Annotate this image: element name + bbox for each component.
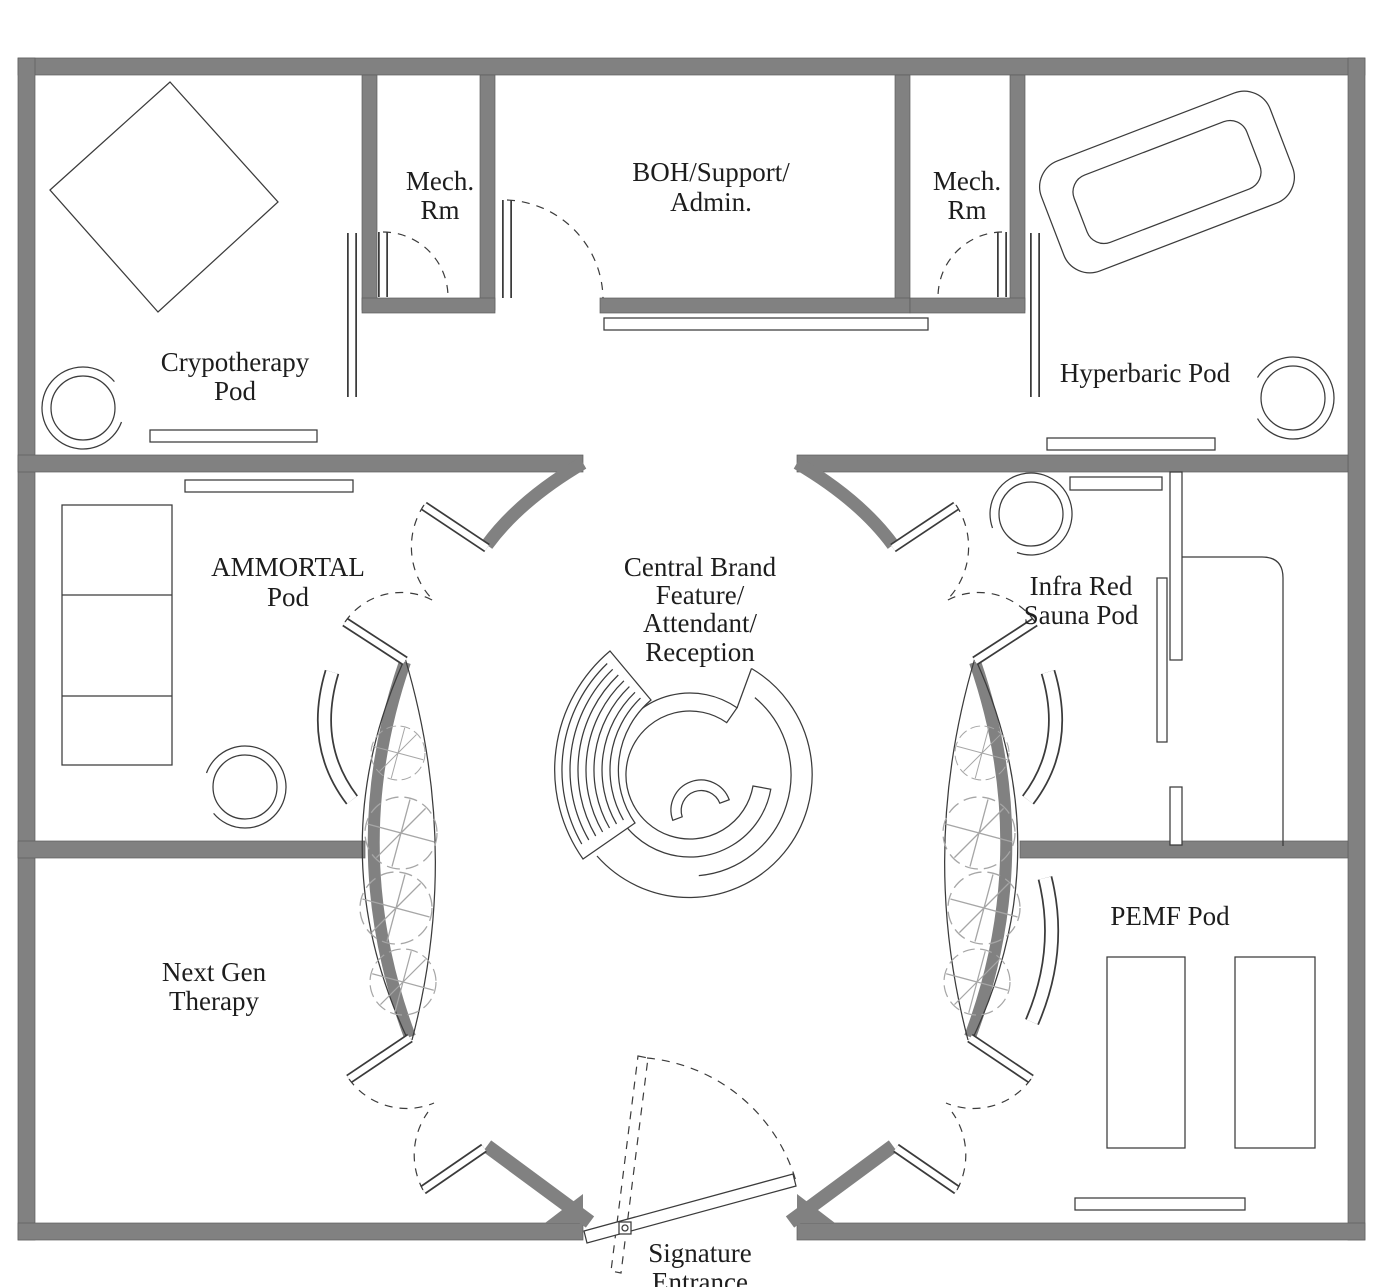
room-label-hyperbaric: Hyperbaric Pod: [1060, 358, 1231, 388]
curved-wall-top-left: [487, 463, 583, 545]
door-leaf-central-tl2-fill: [345, 622, 405, 661]
stool-cryotherapy: [51, 376, 115, 440]
wall-mech-left-bottom: [362, 298, 495, 313]
reception-feature: [555, 651, 812, 898]
sauna-partition-1: [1170, 472, 1182, 660]
wall-boh-mech2: [895, 75, 910, 310]
door-swing-arc-central-bl1: [349, 1079, 434, 1108]
wall-mech-boh: [480, 75, 495, 310]
planter-left-inner-edge: [405, 658, 435, 1040]
room-label-next-gen: Therapy: [169, 986, 259, 1016]
wall-mech-right-bottom: [910, 298, 1025, 313]
bench-cryotherapy: [150, 430, 317, 442]
door-leaf-central-tl1-fill: [424, 506, 487, 548]
wall-lower-left: [18, 841, 365, 858]
room-label-boh: Admin.: [670, 187, 752, 217]
attendant-counter: [671, 780, 729, 820]
curved-wall-top-right: [797, 463, 893, 545]
room-label-cryotherapy: Pod: [214, 376, 257, 406]
tree-icon: [360, 872, 432, 944]
wall-right: [1348, 58, 1365, 1240]
bench-hyperbaric: [1047, 438, 1215, 450]
door-swing-arc-mech-left: [383, 232, 448, 297]
door-leaf-central-bl1-fill: [349, 1038, 410, 1079]
room-label-boh: BOH/Support/: [632, 157, 790, 187]
planter-right-inner-edge: [945, 658, 975, 1040]
floor-plan-canvas: Crypotherapy Pod Mech. Rm BOH/Support/ A…: [0, 0, 1385, 1287]
pivot-door-dashed-position: [611, 1056, 648, 1273]
tree-icon: [948, 872, 1020, 944]
pivot-door-leaf: [584, 1174, 796, 1243]
door-swing-arc-central-tl1: [411, 505, 434, 601]
door-leaf-central-tr1-fill: [893, 506, 956, 548]
wall-bottom-right: [797, 1223, 1365, 1240]
pemf-bed-1: [1107, 957, 1185, 1148]
room-label-infra-red-sauna: Sauna Pod: [1024, 600, 1139, 630]
room-label-infra-red-sauna: Infra Red: [1030, 571, 1133, 601]
wall-bottom-left: [18, 1223, 583, 1240]
stool-sauna-arc: [990, 473, 1072, 555]
stool-cryotherapy-arc: [42, 367, 122, 449]
wall-left: [18, 58, 35, 1240]
wall-mid-left: [18, 455, 583, 472]
room-label-central-brand: Attendant/: [643, 608, 757, 638]
wall-mech2-hyperbaric: [1010, 75, 1025, 310]
floor-plan-page: Crypotherapy Pod Mech. Rm BOH/Support/ A…: [0, 0, 1385, 1287]
door-swing-arc-central-br2: [952, 1112, 966, 1190]
hyperbaric-pod-unit: [1031, 83, 1302, 281]
door-leaf-central-br1-fill: [970, 1038, 1031, 1079]
sauna-enclosure-line: [1182, 557, 1283, 846]
door-swing-arc-central-tl2: [345, 592, 434, 622]
wall-lower-right: [1020, 841, 1348, 858]
stool-sauna: [999, 482, 1063, 546]
pemf-bed-2: [1235, 957, 1315, 1148]
door-leaf-central-bl2-fill: [423, 1148, 484, 1190]
stool-ammortal: [213, 755, 277, 819]
door-swing-arc-central-br1: [946, 1079, 1031, 1108]
room-label-central-brand: Feature/: [656, 580, 745, 610]
room-label-next-gen: Next Gen: [162, 957, 267, 987]
counter-boh: [604, 318, 928, 330]
room-label-central-brand: Central Brand: [624, 552, 777, 582]
bench-ammortal-top: [185, 480, 353, 492]
stool-ammortal-arc: [207, 746, 287, 828]
door-swing-arc-boh: [507, 200, 603, 298]
door-swing-arc-central-bl2: [414, 1112, 428, 1190]
bench-sauna-top: [1070, 477, 1162, 490]
stool-hyperbaric-arc: [1258, 357, 1335, 439]
room-label-mech-right: Rm: [947, 195, 986, 225]
room-label-ammortal: AMMORTAL: [211, 552, 365, 582]
room-label-pemf: PEMF Pod: [1110, 901, 1230, 931]
room-label-central-brand: Reception: [645, 637, 755, 667]
room-label-mech-right: Mech.: [933, 166, 1001, 196]
door-swing-arc-central-tr2: [946, 592, 1035, 622]
door-leaf-central-br2-fill: [896, 1148, 957, 1190]
reception-connector: [737, 669, 752, 709]
door-swing-arc-central-tr1: [946, 505, 969, 601]
curved-wall-planter-right: [970, 662, 1006, 1037]
sauna-partition-3: [1170, 787, 1182, 845]
sauna-partition-2: [1157, 578, 1167, 742]
ammortal-bed: [62, 505, 172, 765]
wall-cryo-mech: [362, 75, 377, 310]
room-label-signature-entrance: Entrance: [652, 1267, 748, 1287]
pivot-hinge-plate: [619, 1222, 631, 1234]
room-label-mech-left: Mech.: [406, 166, 474, 196]
wall-boh-bottom: [600, 298, 910, 313]
cryotherapy-pod-unit: [50, 82, 278, 312]
wall-top: [18, 58, 1365, 75]
room-label-signature-entrance: Signature: [648, 1238, 751, 1268]
room-label-mech-left: Rm: [420, 195, 459, 225]
door-swing-arc-mech-right: [938, 232, 1002, 297]
pivot-door-swing-arc: [647, 1058, 797, 1185]
bench-pemf: [1075, 1198, 1245, 1210]
room-label-ammortal: Pod: [267, 582, 310, 612]
room-label-cryotherapy: Crypotherapy: [161, 347, 310, 377]
wall-mid-right: [797, 455, 1348, 472]
stool-hyperbaric: [1261, 366, 1325, 430]
